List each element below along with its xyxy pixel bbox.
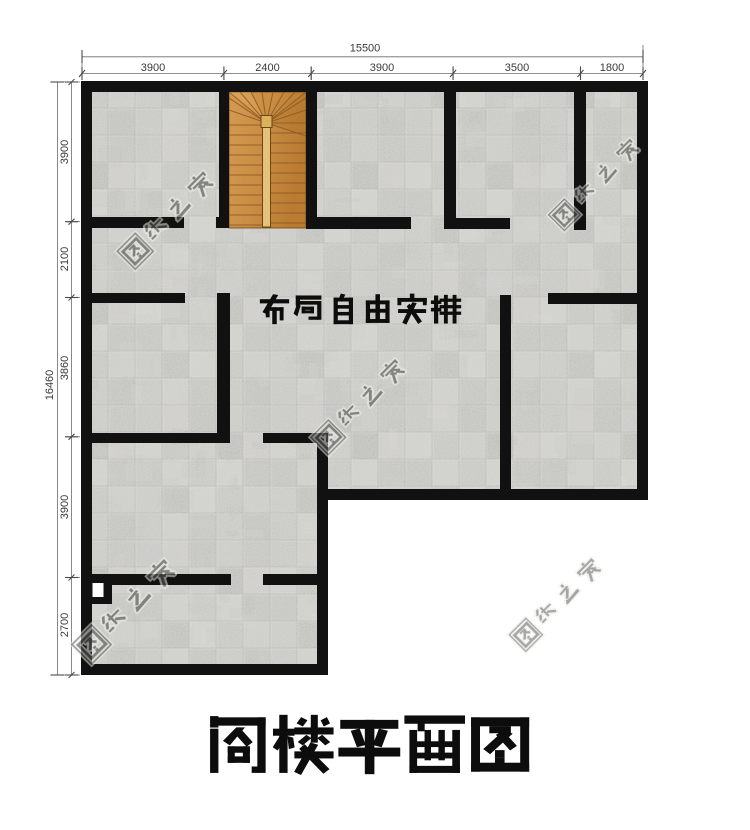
svg-text:3500: 3500 (505, 62, 529, 74)
svg-text:16460: 16460 (44, 370, 56, 401)
svg-text:1800: 1800 (600, 62, 624, 74)
svg-text:2100: 2100 (59, 247, 71, 271)
svg-text:3900: 3900 (141, 62, 165, 74)
svg-text:2400: 2400 (255, 62, 279, 74)
svg-text:3900: 3900 (59, 140, 71, 164)
svg-text:2700: 2700 (59, 613, 71, 637)
svg-text:3900: 3900 (59, 495, 71, 519)
svg-text:15500: 15500 (350, 43, 381, 55)
svg-text:3860: 3860 (59, 356, 71, 380)
svg-text:3900: 3900 (370, 62, 394, 74)
